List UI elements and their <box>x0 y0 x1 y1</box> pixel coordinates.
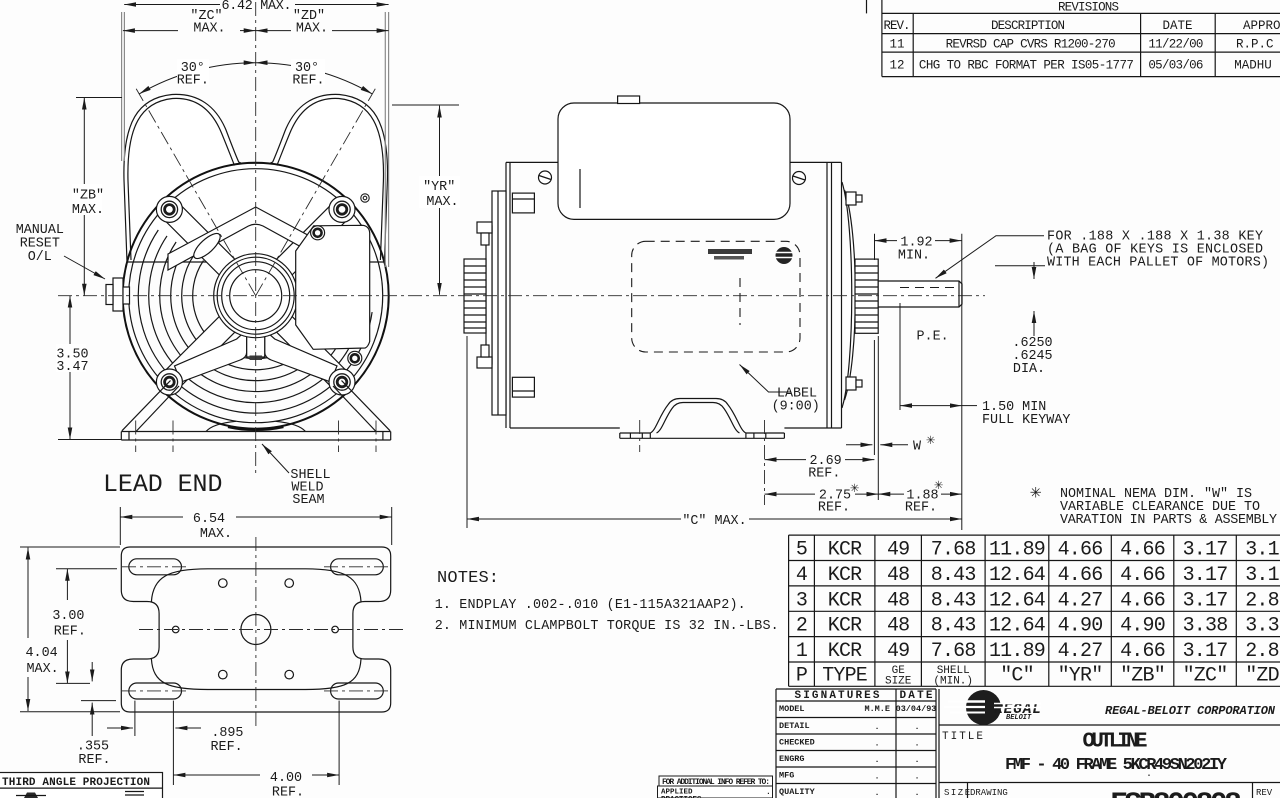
svg-text:5: 5 <box>796 539 807 562</box>
svg-text:48: 48 <box>887 615 909 638</box>
svg-text:OUTLINE: OUTLINE <box>1083 731 1148 754</box>
svg-text:APPROVED: APPROVED <box>1243 19 1280 33</box>
svg-text:"ZB": "ZB" <box>1120 665 1165 688</box>
svg-text:4.00: 4.00 <box>270 771 302 786</box>
svg-text:6.54: 6.54 <box>193 512 225 527</box>
svg-text:"YR": "YR" <box>1058 665 1103 688</box>
svg-text:THIRD ANGLE PROJECTION: THIRD ANGLE PROJECTION <box>2 777 150 789</box>
svg-text:.: . <box>914 755 919 765</box>
svg-text:KCR: KCR <box>828 640 862 663</box>
svg-text:CHG TO RBC FORMAT PER IS05-177: CHG TO RBC FORMAT PER IS05-1777 <box>919 59 1134 73</box>
svg-text:.: . <box>914 788 919 798</box>
svg-text:DESCRIPTION: DESCRIPTION <box>991 19 1065 33</box>
svg-text:4.66: 4.66 <box>1120 589 1165 612</box>
svg-text:.: . <box>914 722 919 732</box>
svg-text:.895: .895 <box>211 726 243 741</box>
svg-text:P: P <box>796 665 807 688</box>
svg-text:SIZE: SIZE <box>885 676 912 688</box>
svg-text:REV.: REV. <box>884 19 911 33</box>
svg-text:.: . <box>914 772 919 782</box>
svg-text:3.17: 3.17 <box>1183 564 1228 587</box>
svg-text:3.17: 3.17 <box>1183 640 1228 663</box>
svg-text:"YR": "YR" <box>423 180 455 195</box>
svg-text:ENGRG: ENGRG <box>779 754 805 764</box>
svg-text:REF.: REF. <box>54 625 86 640</box>
svg-text:3.17: 3.17 <box>1183 589 1228 612</box>
svg-text:.: . <box>874 722 879 732</box>
svg-text:SIGNATURES: SIGNATURES <box>795 690 880 702</box>
svg-text:.: . <box>874 739 879 749</box>
svg-text:"C": "C" <box>1000 665 1034 688</box>
svg-text:.: . <box>914 739 919 749</box>
svg-text:TITLE: TITLE <box>942 731 985 743</box>
svg-text:MADHU: MADHU <box>1234 59 1272 73</box>
svg-text:MODEL: MODEL <box>779 704 805 714</box>
svg-text:6.42 MAX.: 6.42 MAX. <box>222 0 292 14</box>
svg-text:8.43: 8.43 <box>931 615 976 638</box>
svg-text:REF.: REF. <box>211 740 243 755</box>
svg-text:DRAWING: DRAWING <box>970 788 1008 798</box>
svg-text:4.66: 4.66 <box>1120 640 1165 663</box>
svg-text:.: . <box>874 788 879 798</box>
svg-text:MAX.: MAX. <box>193 22 225 37</box>
svg-text:3.38: 3.38 <box>1183 615 1228 638</box>
svg-text:✳: ✳ <box>1030 482 1041 504</box>
svg-text:3.17: 3.17 <box>1183 539 1228 562</box>
svg-text:✳: ✳ <box>850 480 859 497</box>
svg-text:7.68: 7.68 <box>931 640 976 663</box>
svg-text:3.47: 3.47 <box>56 360 88 375</box>
svg-text:REF.: REF. <box>272 786 304 798</box>
svg-text:TYPE: TYPE <box>822 665 867 688</box>
svg-text:2.82: 2.82 <box>1245 589 1280 612</box>
svg-text:12: 12 <box>889 59 904 73</box>
svg-text:11: 11 <box>889 38 904 52</box>
svg-text:DATE: DATE <box>1162 19 1192 33</box>
svg-text:3.17: 3.17 <box>1245 539 1280 562</box>
svg-text:.: . <box>874 755 879 765</box>
svg-text:KCR: KCR <box>828 615 862 638</box>
svg-text:.: . <box>874 772 879 782</box>
svg-text:05/03/06: 05/03/06 <box>1148 59 1203 73</box>
svg-text:REGAL-BELOIT CORPORATION: REGAL-BELOIT CORPORATION <box>1105 704 1276 718</box>
svg-text:FOR ADDITIONAL INFO REFER TO:: FOR ADDITIONAL INFO REFER TO: <box>662 778 770 787</box>
svg-text:48: 48 <box>887 589 909 612</box>
svg-text:(9:00): (9:00) <box>772 400 820 415</box>
svg-text:(MIN.): (MIN.) <box>933 676 973 688</box>
svg-text:P.E.: P.E. <box>917 330 949 345</box>
svg-text:M.M.E: M.M.E <box>864 704 890 714</box>
svg-text:3.17: 3.17 <box>1245 564 1280 587</box>
svg-text:4.66: 4.66 <box>1058 539 1103 562</box>
svg-text:LEAD END: LEAD END <box>103 470 223 499</box>
svg-text:49: 49 <box>887 640 909 663</box>
svg-text:REVISIONS: REVISIONS <box>1058 1 1119 15</box>
svg-text:4.04: 4.04 <box>26 646 58 661</box>
svg-text:R.P.C: R.P.C <box>1236 38 1274 52</box>
svg-text:8.43: 8.43 <box>931 564 976 587</box>
svg-text:O/L: O/L <box>28 250 52 265</box>
svg-text:12.64: 12.64 <box>989 589 1045 612</box>
svg-text:4.66: 4.66 <box>1058 564 1103 587</box>
svg-text:VARATION IN PARTS & ASSEMBLY: VARATION IN PARTS & ASSEMBLY <box>1060 513 1277 528</box>
svg-text:"ZB": "ZB" <box>72 189 104 204</box>
svg-text:MIN.: MIN. <box>898 249 930 264</box>
svg-text:4.27: 4.27 <box>1058 589 1103 612</box>
svg-text:REVRSD CAP CVRS R1200-270: REVRSD CAP CVRS R1200-270 <box>946 38 1116 52</box>
svg-text:03/04/93: 03/04/93 <box>896 704 937 714</box>
svg-text:3.38: 3.38 <box>1245 615 1280 638</box>
svg-text:REF.: REF. <box>292 74 324 89</box>
svg-text:4: 4 <box>796 564 807 587</box>
svg-text:48: 48 <box>887 564 909 587</box>
svg-text:CHECKED: CHECKED <box>779 738 815 748</box>
svg-text:3: 3 <box>796 589 807 612</box>
svg-text:✳: ✳ <box>934 477 943 494</box>
svg-text:.: . <box>766 788 771 797</box>
svg-text:FULL KEYWAY: FULL KEYWAY <box>982 413 1070 428</box>
svg-text:49: 49 <box>887 539 909 562</box>
svg-text:11.89: 11.89 <box>989 640 1045 663</box>
svg-text:REF.: REF. <box>818 501 850 516</box>
svg-text:QUALITY: QUALITY <box>779 787 816 797</box>
svg-text:MAX.: MAX. <box>27 662 59 677</box>
svg-text:11.89: 11.89 <box>989 539 1045 562</box>
svg-text:2. MINIMUM CLAMPBOLT TORQUE IS: 2. MINIMUM CLAMPBOLT TORQUE IS 32 IN.-LB… <box>435 619 779 634</box>
svg-text:8.43: 8.43 <box>931 589 976 612</box>
svg-text:FMF - 40 FRAME 5KCR49SN202IY: FMF - 40 FRAME 5KCR49SN202IY <box>1005 756 1228 775</box>
svg-text:REF.: REF. <box>808 467 840 482</box>
svg-text:MAX.: MAX. <box>200 527 232 542</box>
svg-text:"ZC": "ZC" <box>1183 665 1228 688</box>
svg-text:MAX.: MAX. <box>296 22 328 37</box>
svg-text:2: 2 <box>796 615 807 638</box>
svg-text:REF.: REF. <box>905 501 937 516</box>
svg-text:2.82: 2.82 <box>1245 640 1280 663</box>
svg-text:1. ENDPLAY .002-.010 (E1-115A3: 1. ENDPLAY .002-.010 (E1-115A321AAP2). <box>435 598 746 613</box>
svg-text:4.90: 4.90 <box>1058 615 1103 638</box>
svg-text:7.68: 7.68 <box>931 539 976 562</box>
svg-text:SIZE: SIZE <box>944 788 972 798</box>
svg-text:11/22/00: 11/22/00 <box>1148 38 1203 52</box>
svg-text:SEAM: SEAM <box>292 493 324 508</box>
svg-text:KCR: KCR <box>828 539 862 562</box>
svg-text:✳: ✳ <box>926 432 935 449</box>
svg-text:12.64: 12.64 <box>989 564 1045 587</box>
svg-text:1: 1 <box>796 640 808 663</box>
svg-text:DIA.: DIA. <box>1013 362 1045 377</box>
svg-text:WITH EACH PALLET OF MOTORS): WITH EACH PALLET OF MOTORS) <box>1047 256 1269 271</box>
svg-text:4.66: 4.66 <box>1120 564 1165 587</box>
svg-text:REV: REV <box>1256 788 1273 798</box>
svg-text:REF.: REF. <box>177 74 209 89</box>
svg-text:DATE: DATE <box>900 690 933 702</box>
svg-text:"C" MAX.: "C" MAX. <box>682 514 746 529</box>
svg-text:4.90: 4.90 <box>1120 615 1165 638</box>
svg-text:FSB800808: FSB800808 <box>1110 788 1242 798</box>
svg-text:12.64: 12.64 <box>989 615 1045 638</box>
svg-text:"ZD": "ZD" <box>1245 665 1280 688</box>
svg-text:W: W <box>913 440 922 455</box>
svg-text:MAX.: MAX. <box>426 195 458 210</box>
svg-text:3.00: 3.00 <box>52 609 84 624</box>
svg-text:MAX.: MAX. <box>72 203 104 218</box>
svg-text:4.27: 4.27 <box>1058 640 1103 663</box>
svg-text:NOTES:: NOTES: <box>437 569 499 588</box>
svg-text:DETAIL: DETAIL <box>779 721 810 731</box>
svg-text:KCR: KCR <box>828 564 862 587</box>
svg-text:REF.: REF. <box>78 753 110 768</box>
svg-text:KCR: KCR <box>828 589 862 612</box>
svg-text:.: . <box>1146 769 1152 780</box>
svg-text:BELOIT: BELOIT <box>1006 714 1032 722</box>
svg-text:4.66: 4.66 <box>1120 539 1165 562</box>
svg-text:MFG: MFG <box>779 771 794 781</box>
